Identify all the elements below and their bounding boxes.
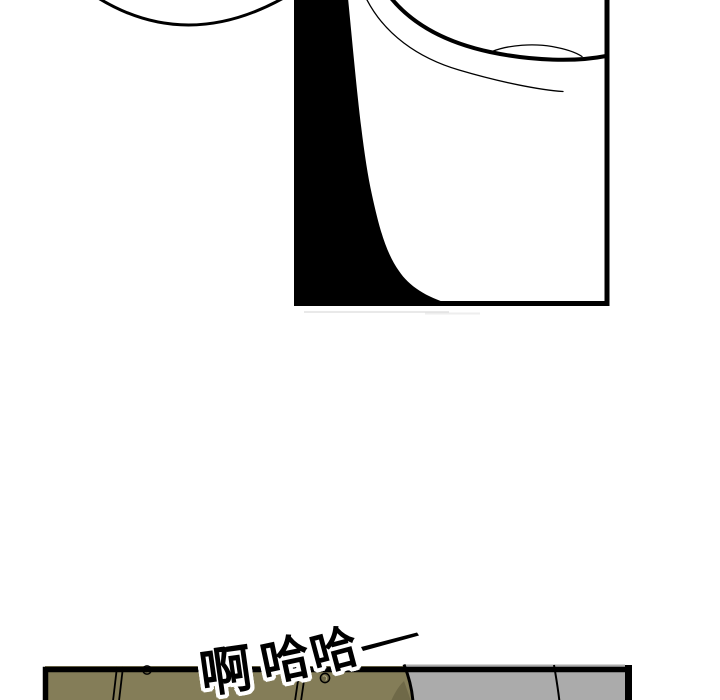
smudge-mark <box>425 313 480 315</box>
comic-page: 啊 哈 哈 <box>0 0 720 700</box>
jacket-button <box>320 673 329 682</box>
artwork-layer <box>0 0 720 700</box>
